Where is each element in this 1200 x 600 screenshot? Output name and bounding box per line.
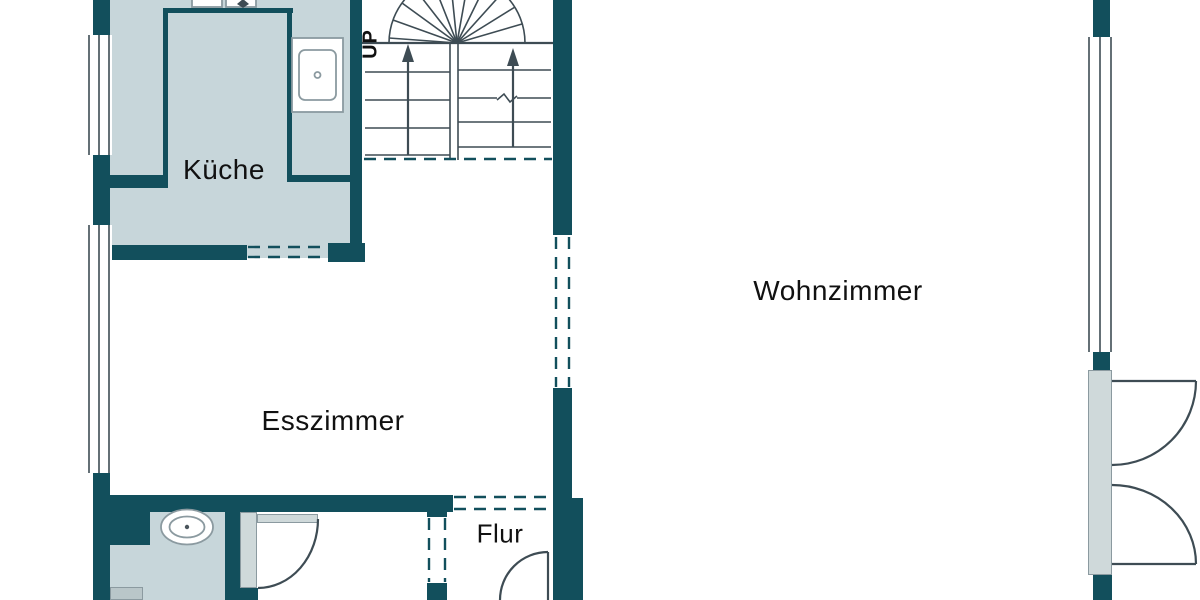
kitchen-counter-edge-right — [287, 8, 292, 180]
wall-dining-living-divider — [553, 388, 572, 498]
kitchen-floor — [93, 0, 362, 258]
window-left-lower — [86, 225, 112, 473]
bath-door-leaf-vertical — [240, 512, 257, 588]
double-french-door — [1112, 381, 1196, 564]
wall-right-mid — [1093, 352, 1110, 372]
wall-right-top — [1093, 0, 1110, 37]
entry-door — [500, 552, 548, 600]
kitchen-counter-edge-top — [163, 8, 293, 13]
wall-bath-top — [93, 495, 453, 512]
wall-hall-right — [553, 498, 583, 600]
room-label-kueche: Küche — [183, 154, 265, 186]
wall-stair-right — [553, 0, 572, 235]
window-left-upper — [86, 35, 112, 155]
floor-plan: Küche Esszimmer Wohnzimmer Flur UP — [0, 0, 1200, 600]
bath-radiator — [110, 587, 143, 600]
wall-below-bath-door — [238, 588, 258, 600]
wall-bath-partition — [225, 512, 240, 600]
wall-hall-left-stub-bottom — [427, 583, 447, 600]
wall-left-top — [93, 0, 110, 35]
french-door-jamb — [1088, 370, 1112, 575]
single-door-bathroom — [258, 519, 318, 588]
stair-down-arrow — [507, 48, 519, 147]
bath-wall-block — [110, 512, 150, 545]
window-right — [1086, 37, 1114, 352]
bath-door-leaf-horizontal — [257, 514, 318, 523]
stair-right-flight — [458, 70, 551, 147]
staircase — [362, 0, 553, 160]
stair-direction-label: UP — [360, 29, 383, 59]
wall-hall-left-stub-top — [427, 508, 447, 517]
room-label-wohnzimmer: Wohnzimmer — [753, 275, 922, 307]
wall-left-bottom — [93, 473, 110, 600]
kitchen-counter-edge-left — [163, 8, 168, 180]
wall-right-bottom — [1093, 573, 1112, 600]
wall-kitchen-dining-left — [93, 245, 247, 260]
stair-fan-treads — [389, 0, 525, 43]
stair-left-flight — [365, 72, 450, 155]
room-label-flur: Flur — [477, 519, 524, 550]
room-label-esszimmer: Esszimmer — [262, 405, 405, 437]
wall-left-mid — [93, 155, 110, 225]
kitchen-wall-stub-right — [287, 175, 350, 182]
stair-up-arrow — [402, 44, 414, 155]
